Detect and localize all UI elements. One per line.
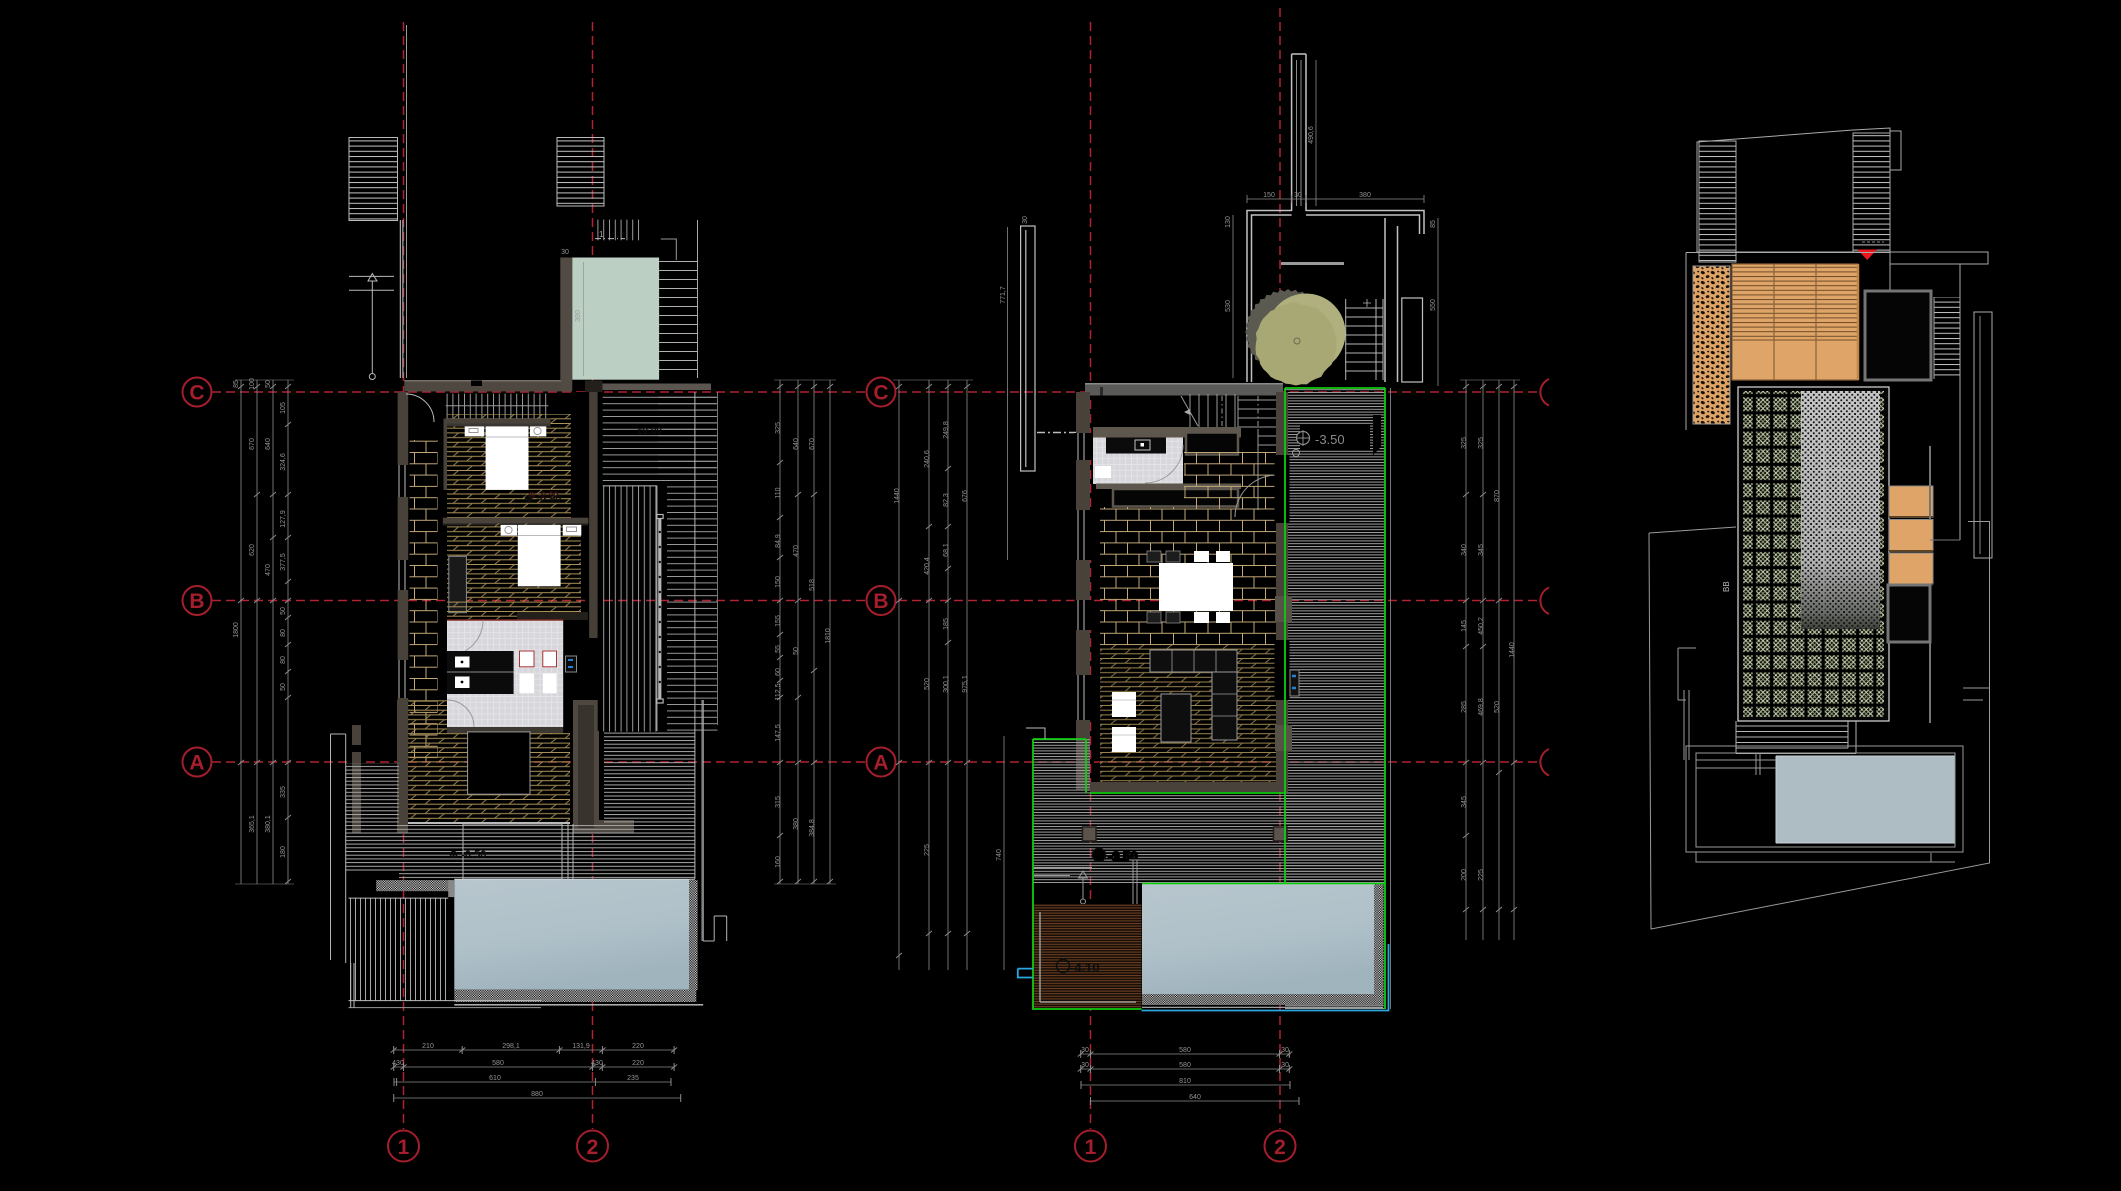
svg-text:377,5: 377,5 [280, 553, 287, 571]
svg-text:235: 235 [627, 1075, 639, 1082]
svg-text:1440: 1440 [894, 488, 901, 504]
svg-text:450,2: 450,2 [1478, 617, 1485, 635]
svg-text:80: 80 [280, 629, 287, 637]
svg-text:30: 30 [1081, 1062, 1089, 1069]
svg-text:520: 520 [924, 678, 931, 690]
svg-text:30: 30 [1081, 1047, 1089, 1054]
svg-text:145: 145 [1461, 620, 1468, 632]
svg-text:127,9: 127,9 [280, 510, 287, 528]
svg-text:130: 130 [1225, 216, 1232, 228]
svg-text:335: 335 [280, 786, 287, 798]
svg-text:520: 520 [1494, 701, 1501, 713]
svg-text:225: 225 [1478, 869, 1485, 881]
svg-text:740: 740 [996, 849, 1003, 861]
svg-text:150: 150 [775, 576, 782, 588]
svg-text:580: 580 [1179, 1062, 1191, 1069]
svg-text:670: 670 [249, 438, 256, 450]
svg-text:390: 390 [575, 310, 582, 322]
svg-text:420,4: 420,4 [924, 557, 931, 575]
svg-text:50: 50 [265, 380, 272, 388]
svg-text:325: 325 [1478, 437, 1485, 449]
svg-text:1: 1 [1085, 1136, 1097, 1159]
svg-text:380: 380 [793, 818, 800, 830]
svg-text:112,5: 112,5 [775, 683, 782, 700]
svg-text:490,6: 490,6 [1308, 126, 1315, 144]
svg-text:105: 105 [280, 402, 287, 414]
svg-text:225: 225 [924, 844, 931, 856]
svg-text:380: 380 [1359, 192, 1371, 199]
svg-text:298,1: 298,1 [502, 1043, 520, 1050]
svg-text:771,7: 771,7 [1000, 286, 1007, 304]
svg-text:325: 325 [775, 422, 782, 434]
svg-text:150: 150 [1263, 192, 1275, 199]
svg-text:⊕ -0.50: ⊕ -0.50 [449, 849, 486, 861]
svg-text:384,8: 384,8 [809, 819, 816, 837]
svg-text:50: 50 [280, 683, 287, 691]
svg-text:2: 2 [1274, 1136, 1286, 1159]
svg-text:640: 640 [1189, 1094, 1201, 1101]
svg-text:30: 30 [1281, 1047, 1289, 1054]
svg-text:518: 518 [809, 579, 816, 591]
svg-text:100: 100 [249, 378, 256, 390]
svg-text:530: 530 [1225, 300, 1232, 312]
svg-text:30: 30 [1281, 1062, 1289, 1069]
svg-text:A: A [873, 752, 888, 775]
svg-text:240,6: 240,6 [924, 450, 931, 468]
svg-text:180: 180 [280, 846, 287, 858]
svg-text:55: 55 [775, 645, 782, 653]
svg-text:470: 470 [265, 564, 272, 576]
svg-text:-4.10: -4.10 [1070, 960, 1100, 975]
svg-text:380,1: 380,1 [265, 815, 272, 833]
svg-text:610: 610 [489, 1075, 501, 1082]
svg-text:340: 340 [1461, 544, 1468, 556]
svg-text:1: 1 [599, 230, 604, 239]
svg-text:1440: 1440 [1509, 642, 1516, 658]
svg-text:200: 200 [1461, 869, 1468, 881]
svg-text:1810: 1810 [825, 628, 832, 644]
svg-text:880: 880 [531, 1091, 543, 1098]
svg-text:220: 220 [632, 1043, 644, 1050]
svg-text:345: 345 [1478, 544, 1485, 556]
svg-text:325: 325 [1461, 437, 1468, 449]
svg-text:1800: 1800 [233, 622, 240, 638]
svg-text:345: 345 [1461, 796, 1468, 808]
svg-text:±0.00: ±0.00 [637, 426, 662, 437]
svg-text:85: 85 [233, 380, 240, 388]
svg-text:⊕ -0.90: ⊕ -0.90 [524, 493, 561, 505]
svg-text:131,9: 131,9 [572, 1043, 590, 1050]
svg-text:550: 550 [1430, 299, 1437, 311]
svg-text:50: 50 [793, 647, 800, 655]
svg-text:160: 160 [775, 856, 782, 868]
svg-text:249,8: 249,8 [943, 421, 950, 439]
svg-text:315: 315 [775, 796, 782, 808]
svg-text:50: 50 [280, 607, 287, 615]
svg-text:580: 580 [1179, 1047, 1191, 1054]
svg-text:580: 580 [492, 1060, 504, 1067]
svg-text:620: 620 [249, 544, 256, 556]
svg-text:147,5: 147,5 [775, 724, 782, 742]
svg-text:1: 1 [398, 1136, 410, 1159]
svg-text:68,1: 68,1 [943, 543, 950, 557]
svg-text:975,1: 975,1 [962, 675, 969, 693]
svg-text:30: 30 [561, 249, 569, 256]
svg-text:210: 210 [422, 1043, 434, 1050]
svg-text:60: 60 [775, 668, 782, 676]
svg-text:30: 30 [1294, 192, 1302, 199]
svg-text:300,1: 300,1 [943, 675, 950, 693]
svg-text:84,9: 84,9 [775, 534, 782, 548]
svg-text:BB: BB [1722, 581, 1731, 592]
svg-text:430: 430 [392, 1060, 404, 1067]
svg-text:B: B [189, 590, 204, 613]
svg-text:-3.50: -3.50 [1315, 432, 1345, 447]
svg-text:2: 2 [587, 1136, 599, 1159]
svg-text:C: C [873, 382, 888, 405]
svg-text:640: 640 [265, 438, 272, 450]
svg-text:285: 285 [1461, 701, 1468, 713]
svg-text:676: 676 [962, 490, 969, 502]
svg-text:80: 80 [280, 656, 287, 664]
svg-text:365,1: 365,1 [249, 815, 256, 833]
svg-text:810: 810 [1179, 1078, 1191, 1085]
svg-text:430: 430 [591, 1060, 603, 1067]
svg-text:B: B [873, 590, 888, 613]
svg-text:A: A [189, 752, 204, 775]
svg-text:C: C [189, 382, 204, 405]
svg-text:470: 470 [793, 545, 800, 557]
svg-text:220: 220 [632, 1060, 644, 1067]
svg-text:640: 640 [793, 438, 800, 450]
svg-text:324,6: 324,6 [280, 453, 287, 471]
svg-text:185: 185 [943, 618, 950, 630]
svg-text:82,3: 82,3 [943, 493, 950, 507]
svg-text:670: 670 [809, 438, 816, 450]
svg-text:110: 110 [775, 487, 782, 498]
svg-text:155: 155 [775, 615, 782, 627]
svg-text:469,8: 469,8 [1478, 698, 1485, 716]
svg-text:85: 85 [1430, 220, 1437, 228]
svg-text:870: 870 [1494, 490, 1501, 502]
svg-text:30: 30 [1022, 216, 1029, 224]
